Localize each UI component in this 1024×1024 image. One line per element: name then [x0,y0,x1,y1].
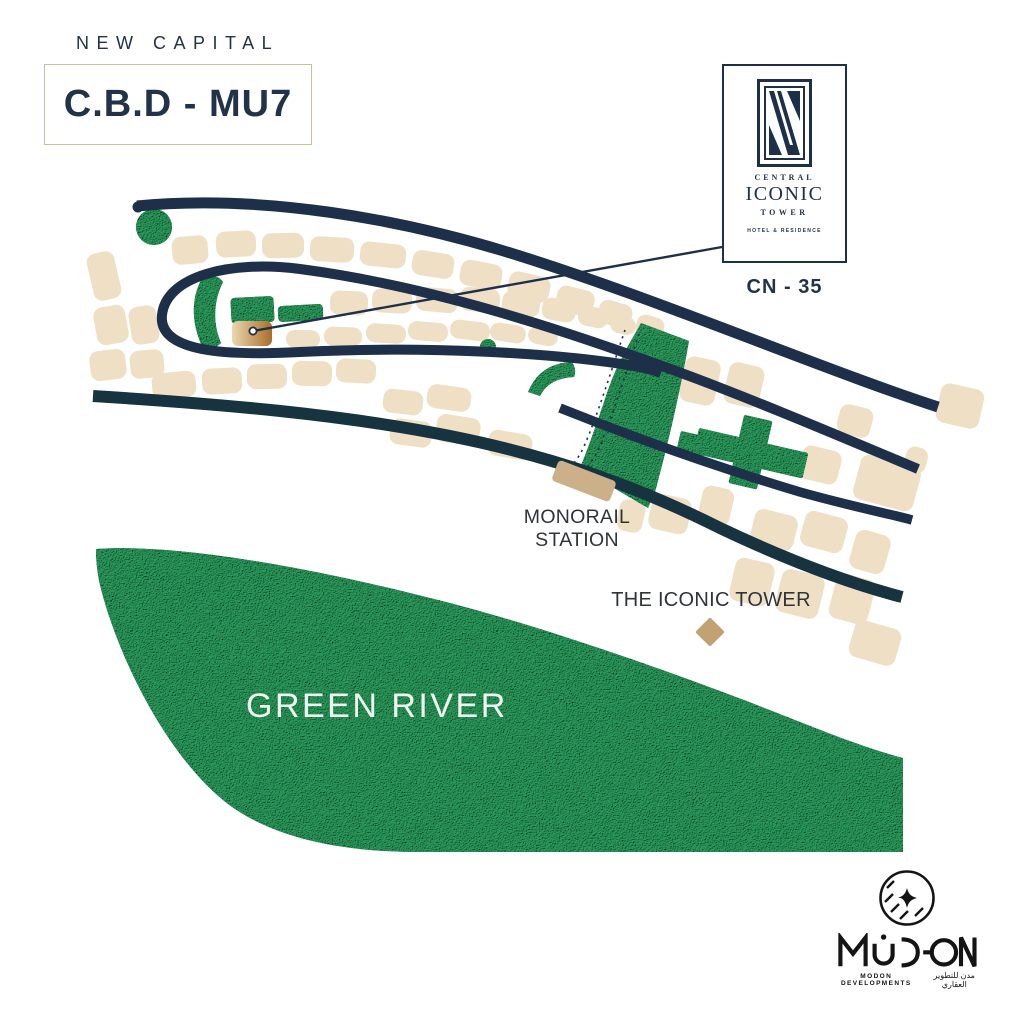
city-block [127,304,161,346]
loop-park-strip [194,276,223,348]
tower-logo-icon [757,79,812,167]
city-block [382,388,425,417]
city-block [359,241,407,270]
city-block [247,364,287,390]
city-block [426,383,473,413]
city-block [410,249,455,280]
developer-caption-ar: مدن للتطوير العقاري [924,971,985,989]
tower-card-line3: TOWER [724,208,845,217]
green-river-label: GREEN RIVER [246,687,508,726]
iconic-tower-label: THE ICONIC TOWER [601,589,821,612]
tower-card-line4: HOTEL & RESIDENCE [724,228,845,234]
plot-code: CN - 35 [722,276,847,299]
tower-card-line2: ICONIC [724,183,845,206]
city-block [85,249,123,302]
modon-circle-icon [877,868,937,928]
city-block [92,304,130,347]
city-block [286,330,320,349]
developer-caption-en: MODON DEVELOPMENTS [829,973,924,987]
small-park-crescent [528,362,575,396]
city-block [847,618,904,668]
city-block [365,323,406,345]
tower-card[interactable]: CENTRAL ICONIC TOWER HOTEL & RESIDENCE [722,64,847,263]
developer-logo: MODON DEVELOPMENTS مدن للتطوير العقاري [824,868,990,989]
city-block [934,382,986,431]
city-block [324,326,363,346]
modon-star-icon [897,888,917,908]
monorail-station-label: MONORAIL STATION [487,506,667,552]
city-block [335,358,376,384]
city-block [309,236,354,263]
city-block [201,367,242,395]
park-circle [136,209,172,245]
district-badge-label: C.B.D - MU7 [64,83,292,126]
city-block [407,320,449,342]
city-block [798,509,850,555]
plot-leader-dot [249,327,256,334]
city-block [262,233,304,259]
iconic-tower-marker [695,617,725,647]
modon-wordmark [829,933,985,969]
city-block [847,528,893,576]
city-block [489,321,527,344]
loop-park-strip [230,296,274,324]
brochure-page: NEW CAPITAL C.B.D - MU7 CENTRAL ICONIC T… [0,0,1024,1024]
city-block [88,348,127,382]
city-block [215,230,256,258]
district-badge: C.B.D - MU7 [44,64,312,145]
city-block [292,361,332,387]
developer-caption: MODON DEVELOPMENTS مدن للتطوير العقاري [829,971,985,989]
tower-card-line1: CENTRAL [724,173,845,182]
region-title: NEW CAPITAL [76,33,279,54]
city-block [171,234,209,265]
city-block [449,319,491,343]
